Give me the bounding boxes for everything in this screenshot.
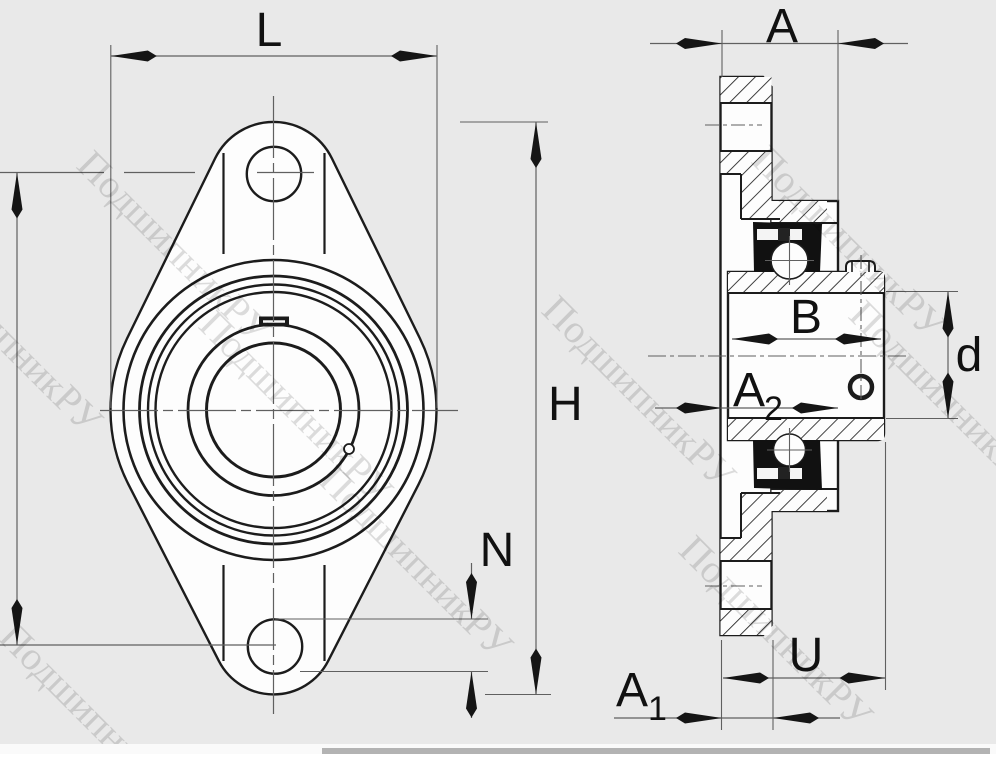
- svg-text:A: A: [616, 664, 648, 717]
- svg-text:B: B: [790, 291, 822, 344]
- svg-text:2: 2: [764, 390, 783, 428]
- svg-text:A: A: [733, 364, 765, 417]
- svg-text:A: A: [766, 0, 798, 53]
- svg-text:1: 1: [648, 690, 667, 728]
- svg-text:N: N: [480, 524, 515, 577]
- svg-text:H: H: [548, 378, 583, 431]
- svg-text:d: d: [956, 329, 983, 382]
- svg-text:L: L: [256, 4, 283, 57]
